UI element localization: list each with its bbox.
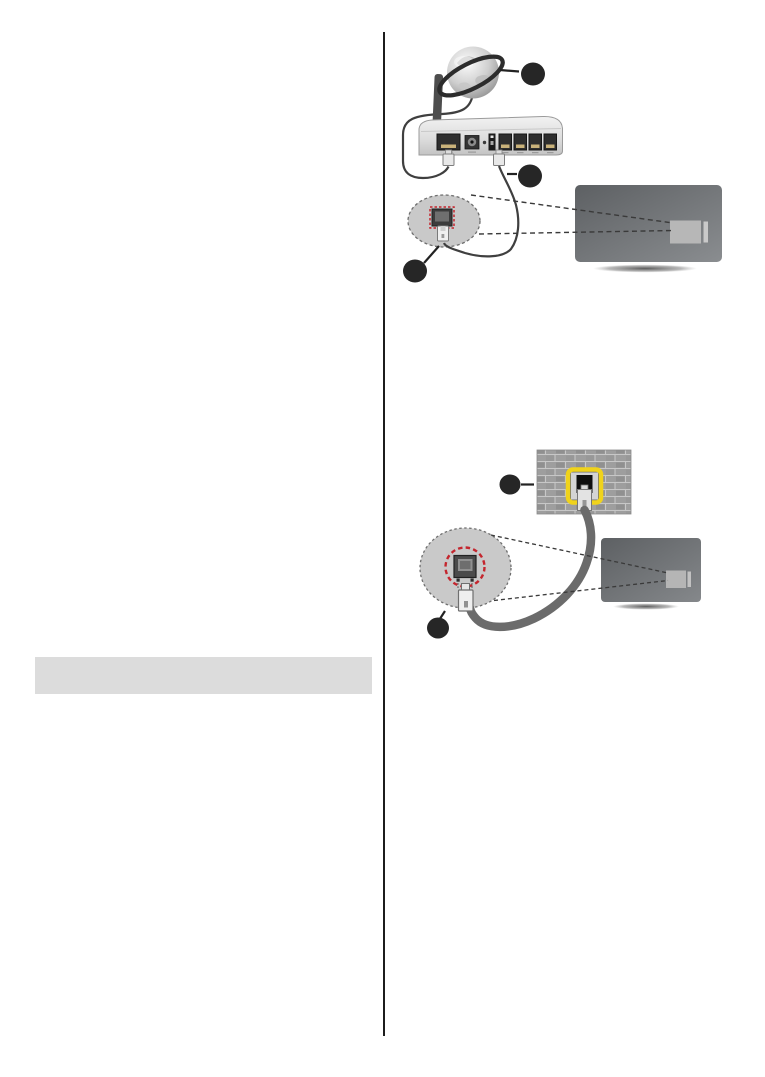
- port-tick: [457, 579, 460, 582]
- tv-port-strip: [704, 222, 709, 243]
- manual-page: [0, 0, 765, 1077]
- callout-tv-lan-port: [403, 260, 427, 283]
- callout-internet: [521, 63, 545, 86]
- callout-lan-cable: [518, 165, 542, 188]
- router-reset-button: [483, 141, 486, 144]
- port-pins: [441, 145, 456, 149]
- port-pins: [546, 145, 555, 149]
- brick-wall-network-socket-icon: [537, 450, 631, 514]
- wall-plug-mark: [583, 500, 587, 506]
- ethernet-plug-clip: [441, 226, 446, 231]
- port-pins: [501, 145, 510, 149]
- port-label: [502, 152, 509, 153]
- port-tick: [471, 579, 474, 582]
- tv-stand-shadow: [613, 603, 679, 609]
- ethernet-plug: [459, 590, 474, 611]
- section-heading-bar: [35, 657, 372, 694]
- port-label: [517, 152, 524, 153]
- callout-wall-socket: [500, 475, 521, 495]
- figure-wall-socket-connection: [385, 440, 725, 670]
- ethernet-plug-mark: [442, 234, 445, 238]
- router-power-switch: [489, 134, 496, 151]
- tv-port-panel: [666, 571, 686, 589]
- ethernet-port-inner: [435, 212, 449, 222]
- figure-wired-router-connection: [385, 25, 765, 290]
- ethernet-port-inner-deep: [460, 561, 471, 569]
- tv-stand-shadow: [593, 265, 697, 273]
- tv-rear-view: [601, 538, 701, 610]
- port-pins: [531, 145, 540, 149]
- callout-tv-lan-leader: [424, 246, 439, 263]
- callout-internet-leader: [500, 70, 519, 72]
- port-label: [468, 152, 476, 153]
- tv-port-strip: [688, 572, 692, 588]
- tv-rear-view: [575, 185, 722, 273]
- port-label: [547, 152, 554, 153]
- callout-tv-lan-port: [427, 618, 449, 639]
- internet-globe-icon: [434, 47, 508, 104]
- wireless-router-icon: [419, 116, 563, 155]
- port-pins: [516, 145, 525, 149]
- ethernet-plug-mark: [464, 601, 468, 608]
- tv-port-panel: [670, 221, 701, 244]
- port-label: [532, 152, 539, 153]
